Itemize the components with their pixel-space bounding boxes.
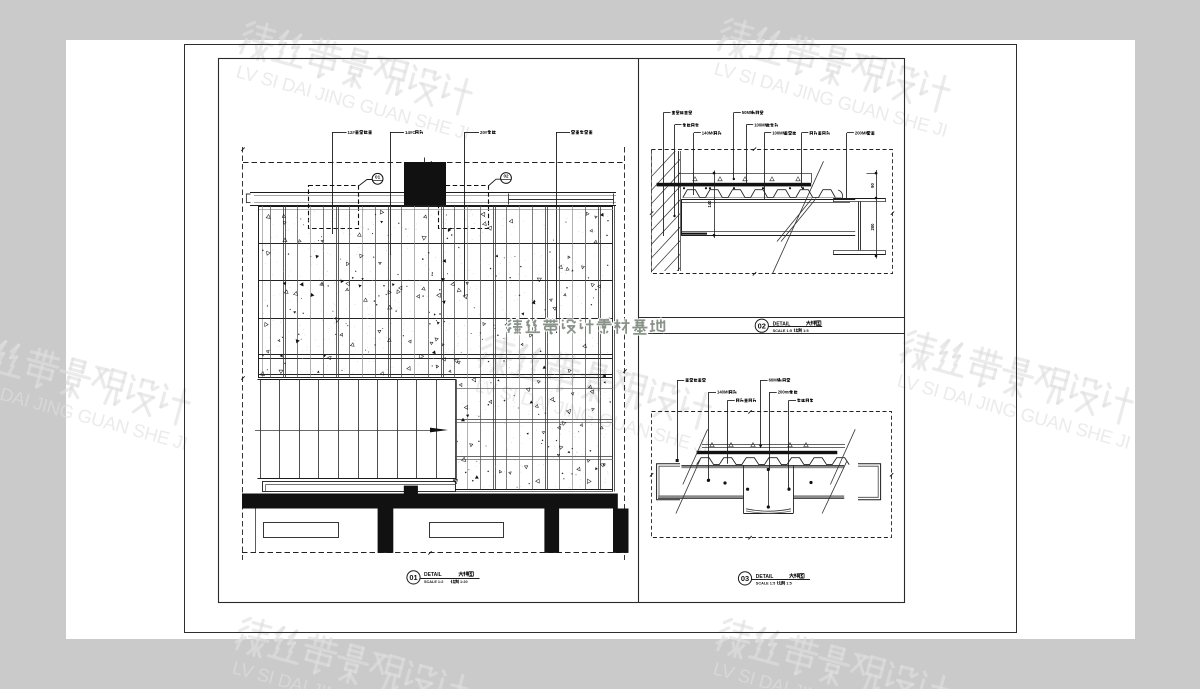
svg-text:02: 02 (503, 174, 509, 179)
svg-text:03: 03 (741, 574, 749, 583)
svg-text:14#C: 14#C (405, 130, 416, 135)
svg-text:DETAIL: DETAIL (756, 574, 774, 580)
svg-text:SCALE 1:5: SCALE 1:5 (756, 582, 775, 586)
svg-text:140MC: 140MC (717, 390, 731, 395)
svg-text:SCALE 1:5: SCALE 1:5 (773, 329, 792, 333)
svg-text:12#: 12# (348, 130, 356, 135)
svg-text:140MC: 140MC (702, 131, 716, 136)
svg-text:02: 02 (758, 321, 766, 330)
svg-text:200: 200 (870, 223, 875, 231)
svg-text:1:5: 1:5 (786, 582, 792, 586)
svg-text:20#: 20# (480, 130, 488, 135)
svg-text:1:5: 1:5 (803, 329, 809, 333)
svg-text:01: 01 (409, 573, 417, 582)
svg-text:1:20: 1:20 (460, 580, 468, 584)
svg-text:01: 01 (375, 174, 381, 179)
svg-text:90: 90 (870, 183, 875, 188)
svg-text:SCALE 1:2: SCALE 1:2 (424, 580, 443, 584)
svg-text:DETAIL: DETAIL (773, 321, 791, 327)
svg-text:DETAIL: DETAIL (424, 572, 442, 578)
svg-text:140: 140 (707, 200, 712, 208)
